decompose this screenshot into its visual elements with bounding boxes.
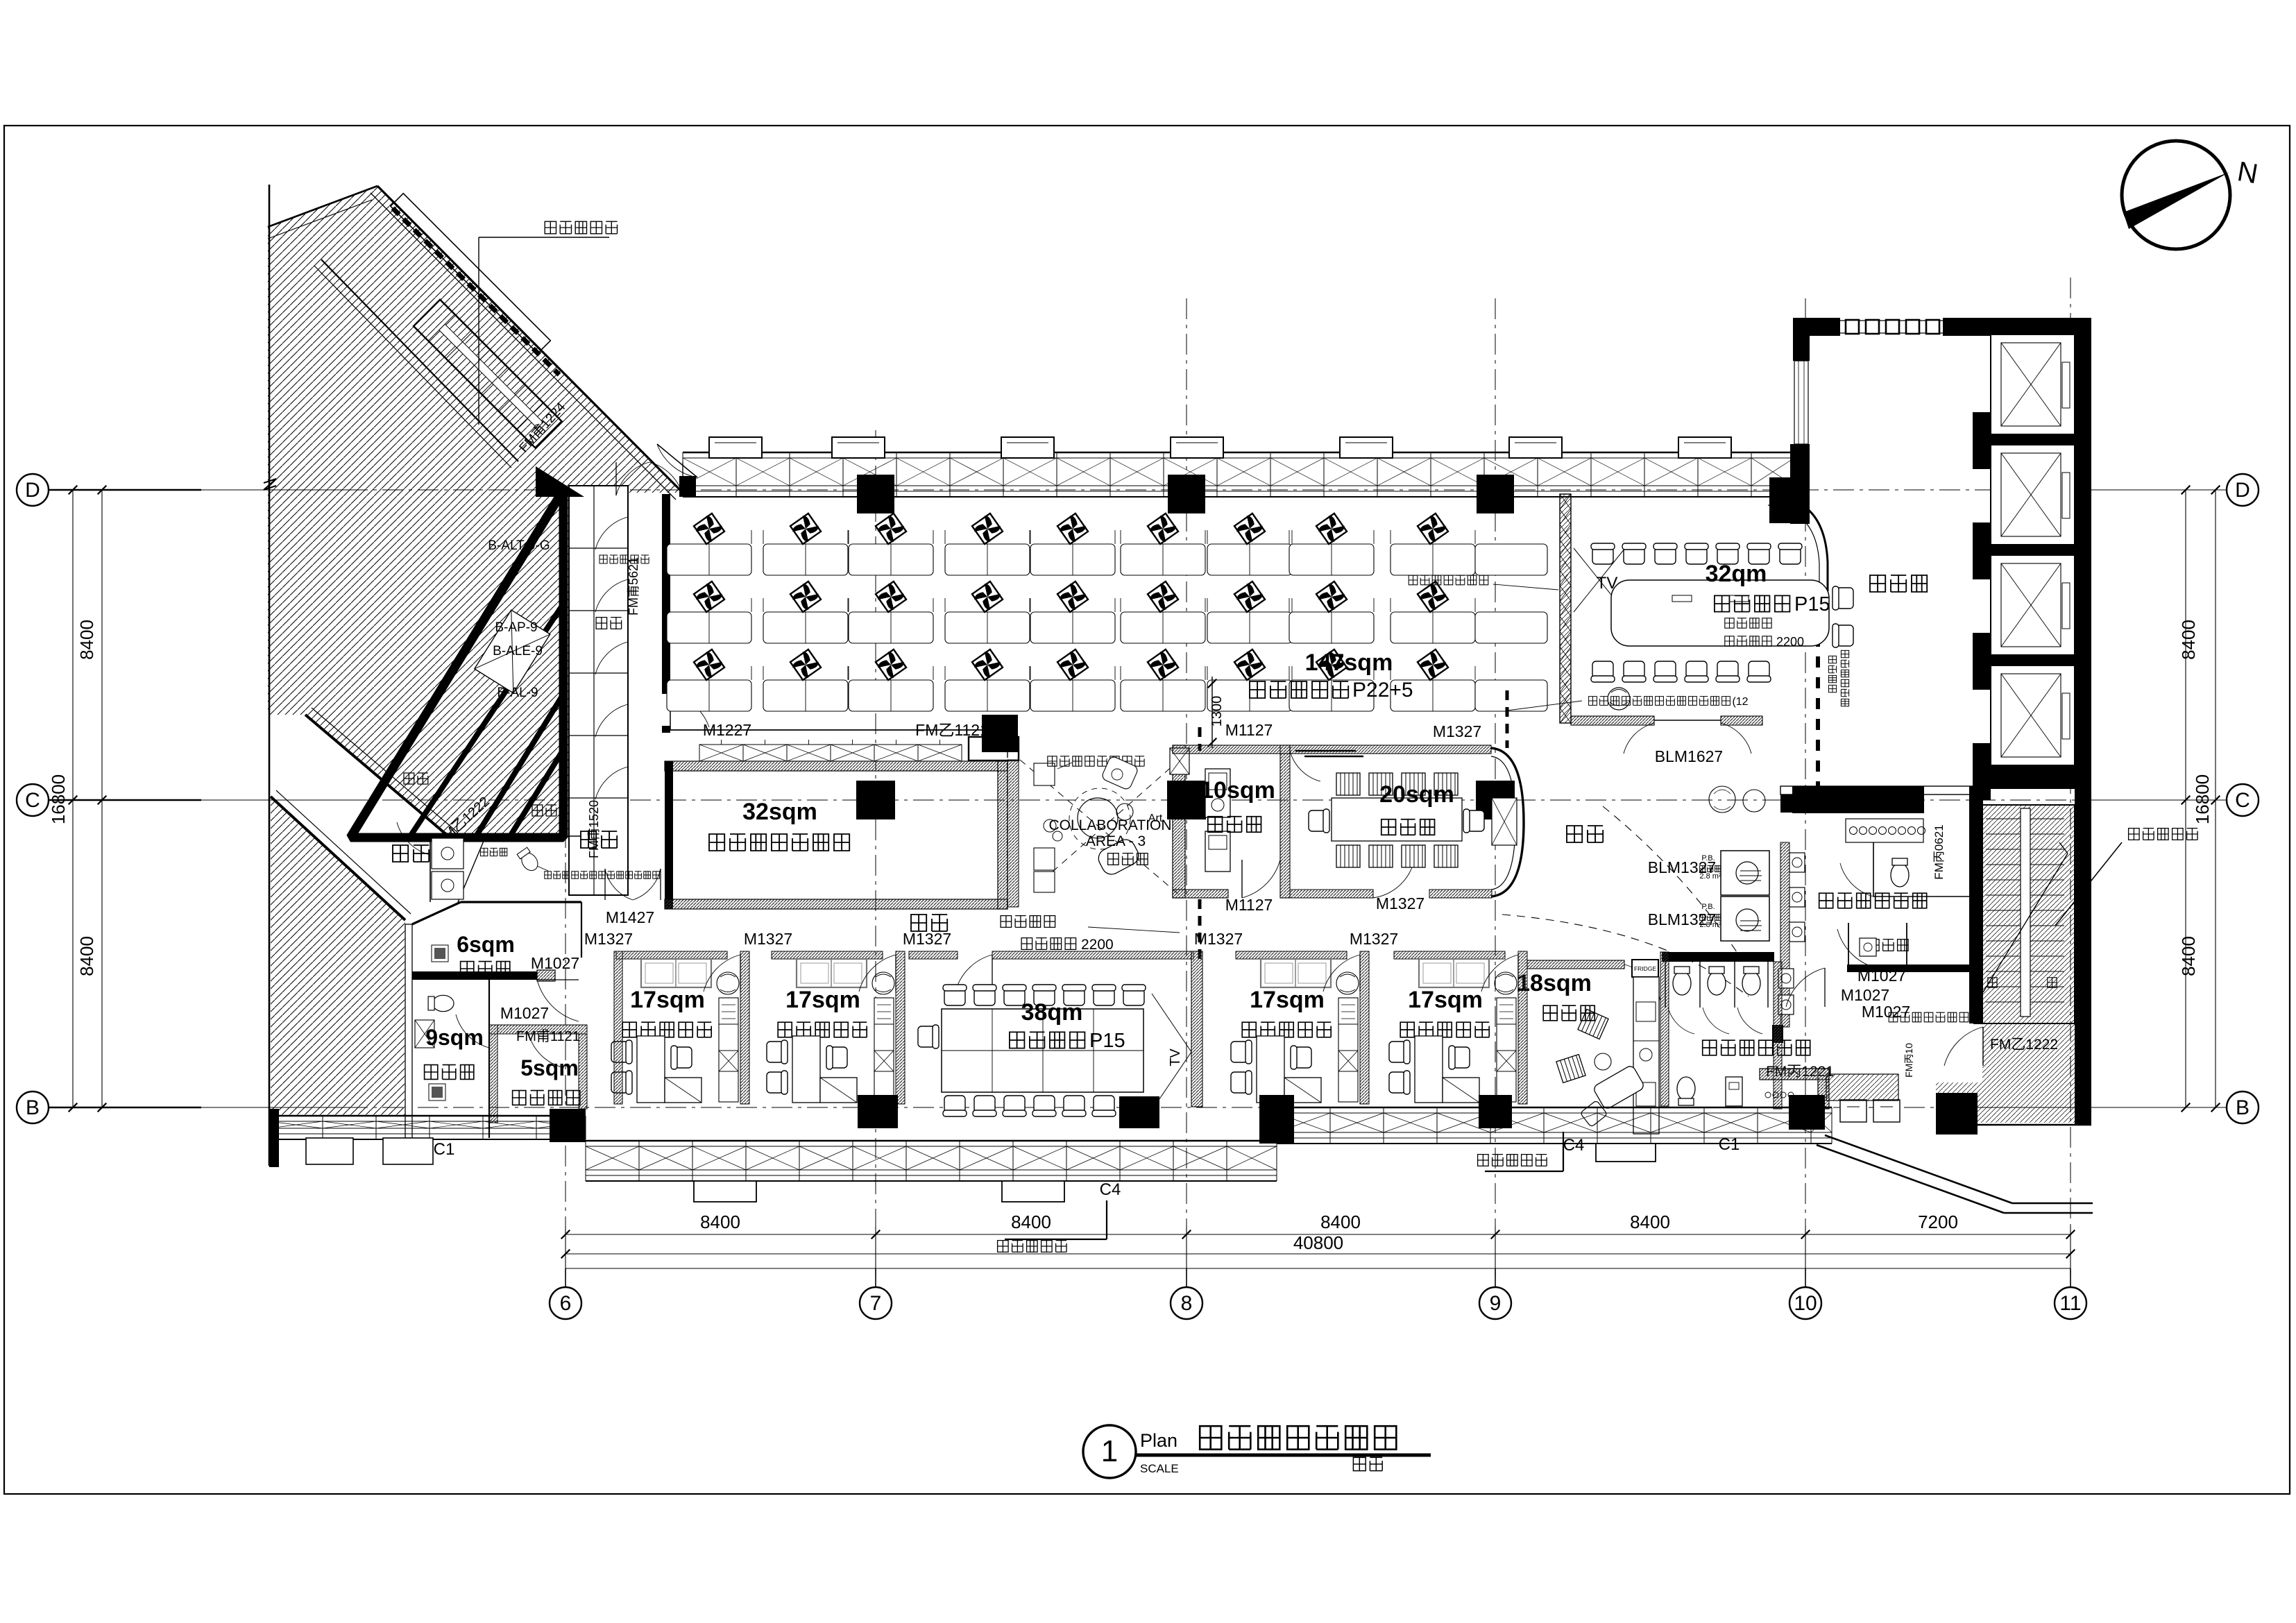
- svg-text:B-AL-9: B-AL-9: [497, 686, 538, 700]
- svg-text:M1327: M1327: [1350, 930, 1398, 948]
- svg-text:C: C: [25, 789, 40, 812]
- svg-text:32sqm: 32sqm: [742, 799, 817, 825]
- svg-text:FM丙10: FM丙10: [1903, 1043, 1914, 1078]
- svg-text:11: 11: [2059, 1292, 2081, 1315]
- svg-text:M1427: M1427: [606, 908, 654, 926]
- svg-text:M1327: M1327: [1376, 894, 1425, 912]
- svg-text:M1327: M1327: [584, 930, 633, 948]
- svg-text:8400: 8400: [700, 1212, 740, 1232]
- svg-text:18sqm: 18sqm: [1517, 970, 1592, 996]
- svg-text:B-AP-9: B-AP-9: [495, 620, 537, 635]
- svg-text:16800: 16800: [2192, 774, 2213, 824]
- svg-text:(12: (12: [1732, 696, 1748, 708]
- svg-text:P.B.: P.B.: [1701, 903, 1715, 911]
- svg-text:TV: TV: [1168, 1048, 1183, 1067]
- svg-text:2200: 2200: [1081, 937, 1114, 953]
- svg-text:M1127: M1127: [1225, 721, 1273, 739]
- svg-text:5sqm: 5sqm: [520, 1055, 579, 1080]
- svg-text:P15: P15: [1794, 593, 1830, 615]
- svg-text:8400: 8400: [76, 620, 97, 660]
- svg-text:M1327: M1327: [1433, 722, 1481, 740]
- svg-text:1300: 1300: [1209, 696, 1225, 727]
- svg-text:FRIDGE: FRIDGE: [1634, 965, 1656, 972]
- svg-text:M1027: M1027: [531, 954, 579, 972]
- svg-text:P.B.: P.B.: [1701, 854, 1715, 863]
- svg-text:2200: 2200: [1776, 635, 1804, 649]
- svg-text:6sqm: 6sqm: [457, 932, 515, 957]
- svg-text:Art: Art: [1148, 813, 1163, 824]
- svg-text:8400: 8400: [1630, 1212, 1670, 1232]
- svg-text:2.8 m²: 2.8 m²: [1699, 921, 1721, 929]
- svg-text:17sqm: 17sqm: [785, 987, 860, 1013]
- svg-text:8400: 8400: [76, 936, 97, 976]
- svg-text:2.8 m²: 2.8 m²: [1699, 872, 1721, 881]
- svg-text:40800: 40800: [1293, 1232, 1343, 1253]
- svg-text:C1: C1: [1719, 1135, 1740, 1154]
- svg-text:BLM1627: BLM1627: [1655, 747, 1723, 765]
- svg-text:8400: 8400: [1320, 1212, 1361, 1232]
- svg-text:Plan: Plan: [1140, 1430, 1177, 1451]
- svg-text:M1327: M1327: [744, 930, 792, 948]
- svg-text:C1: C1: [434, 1140, 455, 1159]
- svg-text:FM甫1520: FM甫1520: [587, 800, 601, 858]
- svg-text:SCALE: SCALE: [1140, 1462, 1179, 1475]
- svg-text:9: 9: [1490, 1292, 1502, 1315]
- svg-text:D: D: [25, 479, 40, 502]
- svg-text:B: B: [26, 1096, 40, 1119]
- svg-text:B-ALE-9: B-ALE-9: [493, 644, 543, 658]
- svg-text:32qm: 32qm: [1706, 561, 1767, 587]
- svg-text:20sqm: 20sqm: [1379, 781, 1454, 808]
- svg-text:10: 10: [1794, 1292, 1817, 1315]
- svg-text:7: 7: [870, 1292, 882, 1315]
- svg-text:C4: C4: [1563, 1136, 1585, 1155]
- svg-text:AREA - 3: AREA - 3: [1086, 833, 1146, 849]
- svg-text:38qm: 38qm: [1021, 999, 1083, 1026]
- svg-text:8400: 8400: [1011, 1212, 1051, 1232]
- svg-text:16800: 16800: [48, 774, 69, 824]
- svg-text:FM丙0621: FM丙0621: [1932, 824, 1946, 879]
- svg-text:M1327: M1327: [903, 930, 951, 948]
- svg-text:10sqm: 10sqm: [1200, 777, 1275, 804]
- svg-text:M1027: M1027: [1841, 986, 1889, 1004]
- svg-text:P22+5: P22+5: [1352, 679, 1413, 702]
- svg-text:17sqm: 17sqm: [630, 987, 705, 1013]
- svg-text:8400: 8400: [2178, 620, 2199, 660]
- svg-text:17sqm: 17sqm: [1408, 987, 1483, 1013]
- svg-text:147sqm: 147sqm: [1305, 649, 1393, 676]
- svg-text:M1027: M1027: [1862, 1003, 1910, 1021]
- svg-text:7200: 7200: [1918, 1212, 1958, 1232]
- svg-text:8: 8: [1181, 1292, 1193, 1315]
- svg-text:M1027: M1027: [500, 1004, 549, 1022]
- svg-text:1: 1: [1101, 1434, 1118, 1468]
- svg-text:B-ALT-9-G: B-ALT-9-G: [488, 538, 550, 553]
- svg-text:M1127: M1127: [1225, 896, 1273, 914]
- svg-text:C: C: [2235, 789, 2250, 812]
- svg-text:M1327: M1327: [1194, 930, 1243, 948]
- svg-text:17sqm: 17sqm: [1250, 987, 1325, 1013]
- svg-text:D: D: [2235, 479, 2250, 502]
- svg-text:P15: P15: [1089, 1030, 1125, 1052]
- svg-text:9sqm: 9sqm: [425, 1025, 484, 1050]
- svg-text:FM甫1121: FM甫1121: [516, 1028, 580, 1044]
- svg-text:C4: C4: [1100, 1180, 1121, 1199]
- svg-text:8400: 8400: [2178, 936, 2199, 976]
- svg-text:B: B: [2236, 1096, 2250, 1119]
- svg-text:FM甫5621: FM甫5621: [627, 557, 640, 615]
- svg-text:6: 6: [560, 1292, 572, 1315]
